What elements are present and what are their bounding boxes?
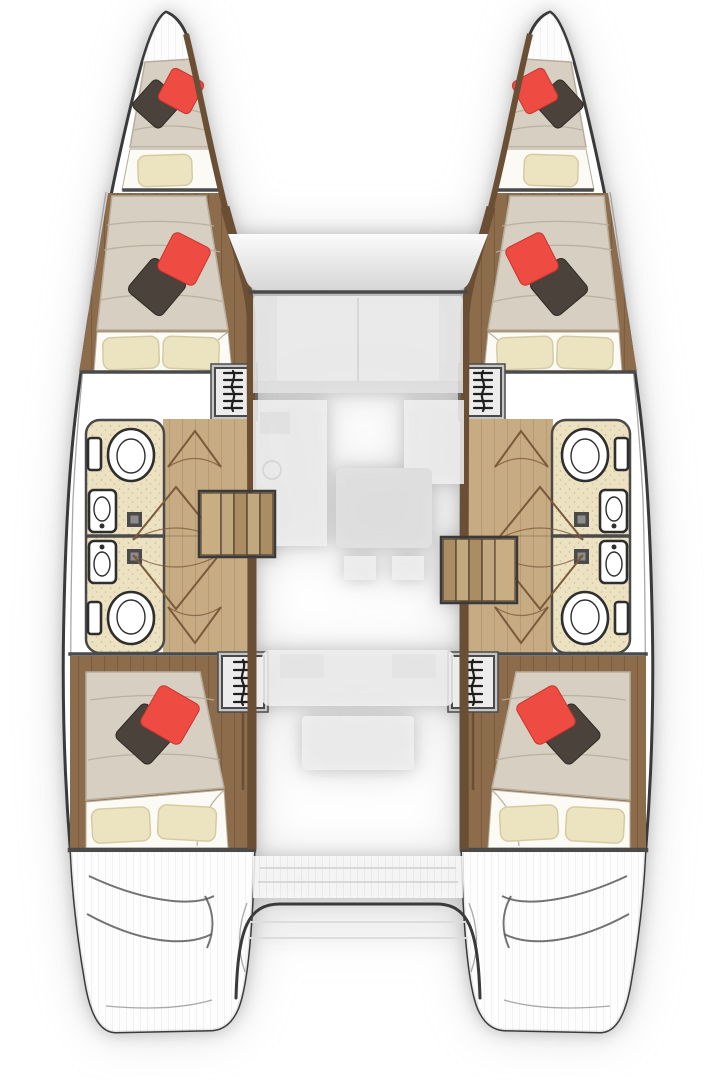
shower-drain-grate [131, 516, 139, 524]
cream-pillow [137, 154, 192, 187]
sink-faucet [100, 524, 105, 529]
saloon-table-ghost [336, 468, 432, 548]
stair-tread [260, 493, 273, 555]
stair-landing [201, 493, 221, 555]
stern-deck [71, 852, 254, 1032]
stair-tread [234, 493, 247, 555]
stern-port [71, 852, 254, 1032]
ladder-hatch-aft [218, 652, 268, 712]
stair-tread [456, 539, 469, 601]
stair-tread [469, 539, 482, 601]
floor-plan-canvas [0, 0, 720, 1080]
sink-faucet [100, 545, 105, 550]
seat-ghost [344, 556, 376, 580]
stair-tread [443, 539, 456, 601]
cream-pillow [102, 336, 159, 370]
cockpit-cushion-ghost [392, 654, 436, 678]
toilet-cistern [88, 438, 101, 470]
seat-ghost [392, 556, 424, 580]
stair-tread [247, 493, 260, 555]
stair-tread [482, 539, 495, 601]
aft-deck-band [253, 856, 463, 898]
sofa-armrest-ghost [439, 296, 463, 384]
center-nacelle [228, 234, 488, 998]
stairs-starboard [441, 537, 517, 603]
aft-platform-arch [236, 904, 480, 998]
front-window-band [228, 234, 488, 291]
sofa-back-ghost [253, 381, 463, 393]
cockpit-cushion-ghost [280, 654, 324, 678]
stairs-port [199, 491, 275, 557]
cream-pillow [91, 807, 151, 844]
catamaran-plan [63, 12, 653, 1032]
toilet-cistern [88, 602, 101, 634]
stair-tread [221, 493, 234, 555]
hull-starboard-mirror [448, 12, 653, 1032]
stair-landing [495, 539, 515, 601]
galley-sink-ghost [260, 412, 290, 434]
cream-pillow [157, 805, 217, 842]
saloon-ghost [253, 296, 464, 898]
sofa-armrest-ghost [253, 296, 277, 384]
cockpit-table-ghost [302, 716, 414, 770]
